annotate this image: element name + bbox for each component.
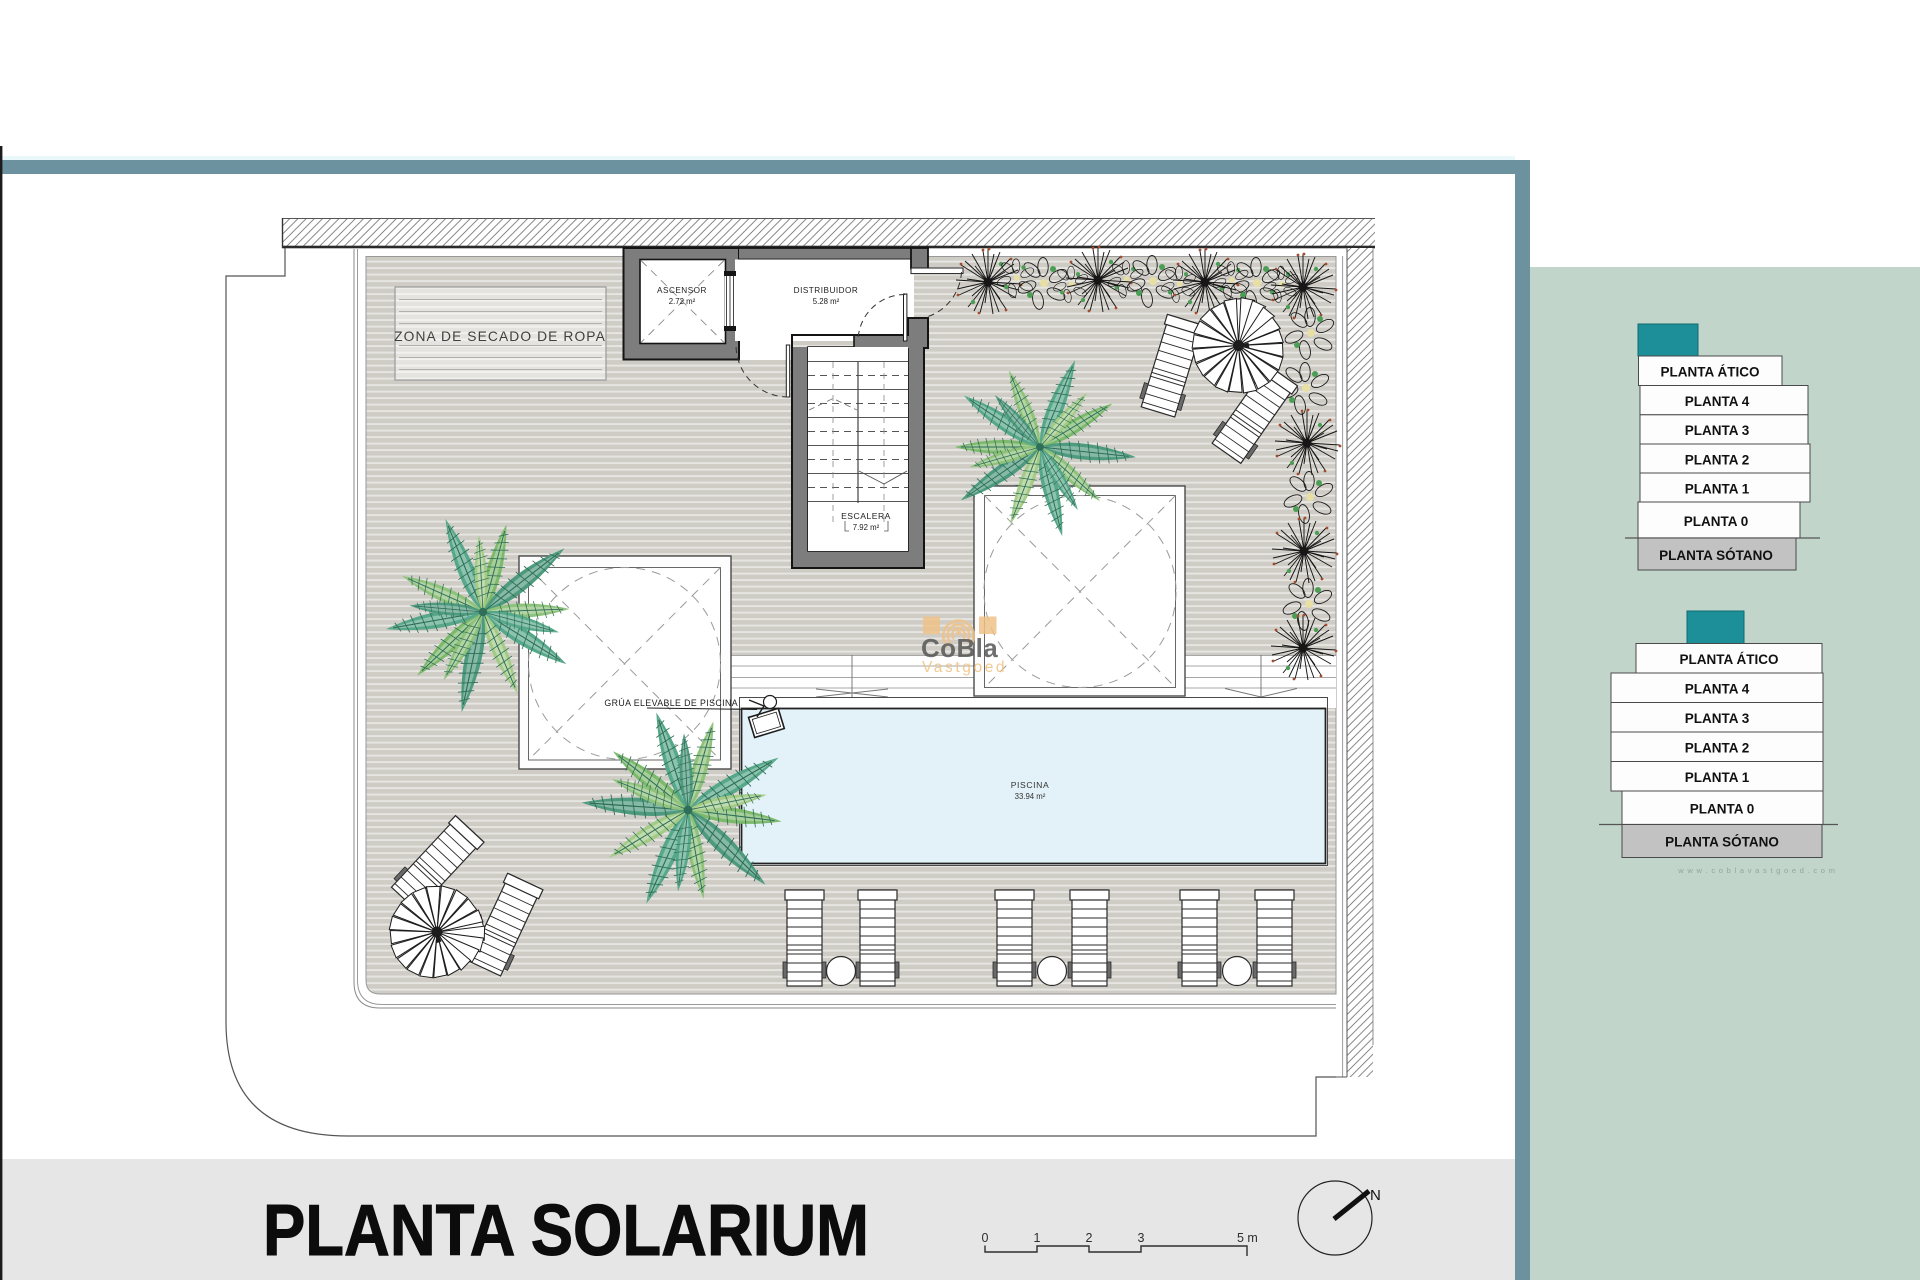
svg-text:5 m: 5 m bbox=[1237, 1231, 1258, 1245]
svg-text:PLANTA 2: PLANTA 2 bbox=[1685, 453, 1750, 468]
svg-text:3: 3 bbox=[1138, 1231, 1145, 1245]
svg-text:PISCINA: PISCINA bbox=[1011, 780, 1050, 790]
svg-text:PLANTA 1: PLANTA 1 bbox=[1685, 770, 1750, 785]
svg-text:PLANTA 3: PLANTA 3 bbox=[1685, 423, 1750, 438]
svg-text:GRÚA ELEVABLE DE PISCINA: GRÚA ELEVABLE DE PISCINA bbox=[604, 698, 738, 708]
svg-text:PLANTA ÁTICO: PLANTA ÁTICO bbox=[1661, 365, 1760, 380]
svg-text:ASCENSOR: ASCENSOR bbox=[657, 286, 707, 295]
svg-text:PLANTA 4: PLANTA 4 bbox=[1685, 682, 1750, 697]
svg-text:PLANTA 2: PLANTA 2 bbox=[1685, 741, 1750, 756]
svg-text:33.94 m²: 33.94 m² bbox=[1015, 792, 1046, 801]
svg-text:w w w . c o b l a v a s t g o: w w w . c o b l a v a s t g o e d . c o … bbox=[1677, 866, 1835, 875]
svg-text:PLANTA 1: PLANTA 1 bbox=[1685, 482, 1750, 497]
svg-text:PLANTA 0: PLANTA 0 bbox=[1690, 802, 1755, 817]
svg-text:ESCALERA: ESCALERA bbox=[841, 511, 891, 521]
svg-text:ZONA DE SECADO DE ROPA: ZONA DE SECADO DE ROPA bbox=[394, 329, 606, 344]
svg-text:0: 0 bbox=[982, 1231, 989, 1245]
svg-text:Vastgoed: Vastgoed bbox=[922, 659, 1007, 676]
svg-text:1: 1 bbox=[1034, 1231, 1041, 1245]
svg-text:PLANTA 0: PLANTA 0 bbox=[1684, 514, 1749, 529]
svg-text:7.92 m²: 7.92 m² bbox=[853, 523, 880, 532]
svg-text:PLANTA SÓTANO: PLANTA SÓTANO bbox=[1659, 548, 1773, 563]
svg-text:PLANTA 4: PLANTA 4 bbox=[1685, 394, 1750, 409]
svg-text:DISTRIBUIDOR: DISTRIBUIDOR bbox=[794, 286, 859, 295]
svg-text:2.72 m²: 2.72 m² bbox=[669, 297, 696, 306]
svg-text:2: 2 bbox=[1086, 1231, 1093, 1245]
svg-text:N: N bbox=[1370, 1187, 1381, 1204]
svg-text:PLANTA SÓTANO: PLANTA SÓTANO bbox=[1665, 835, 1779, 850]
svg-text:PLANTA SOLARIUM: PLANTA SOLARIUM bbox=[263, 1191, 869, 1271]
svg-text:PLANTA ÁTICO: PLANTA ÁTICO bbox=[1680, 652, 1779, 667]
svg-text:PLANTA 3: PLANTA 3 bbox=[1685, 711, 1750, 726]
svg-text:5.28 m²: 5.28 m² bbox=[813, 297, 840, 306]
